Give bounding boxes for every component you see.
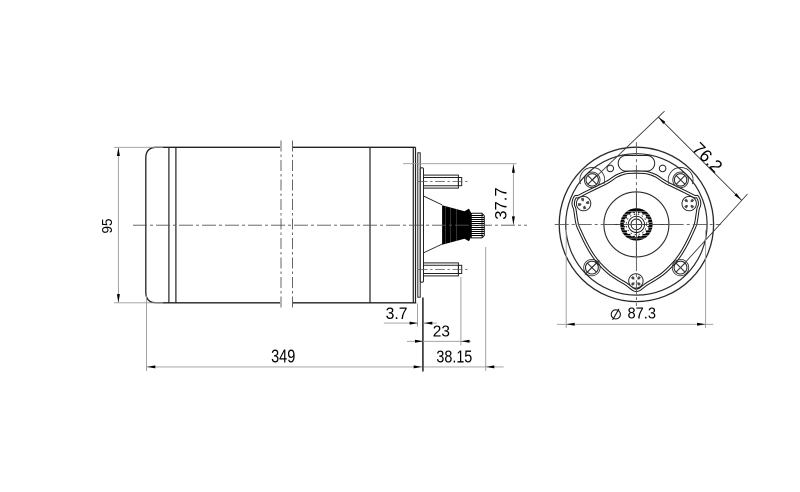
- svg-text:95: 95: [100, 219, 116, 234]
- svg-text:3.7: 3.7: [386, 304, 408, 323]
- svg-text:349: 349: [271, 346, 295, 366]
- svg-text:76.2: 76.2: [688, 138, 726, 176]
- svg-text:37.7: 37.7: [492, 187, 511, 219]
- svg-text:23: 23: [433, 324, 450, 341]
- svg-text:38.15: 38.15: [436, 346, 472, 366]
- svg-text:87.3: 87.3: [628, 306, 657, 323]
